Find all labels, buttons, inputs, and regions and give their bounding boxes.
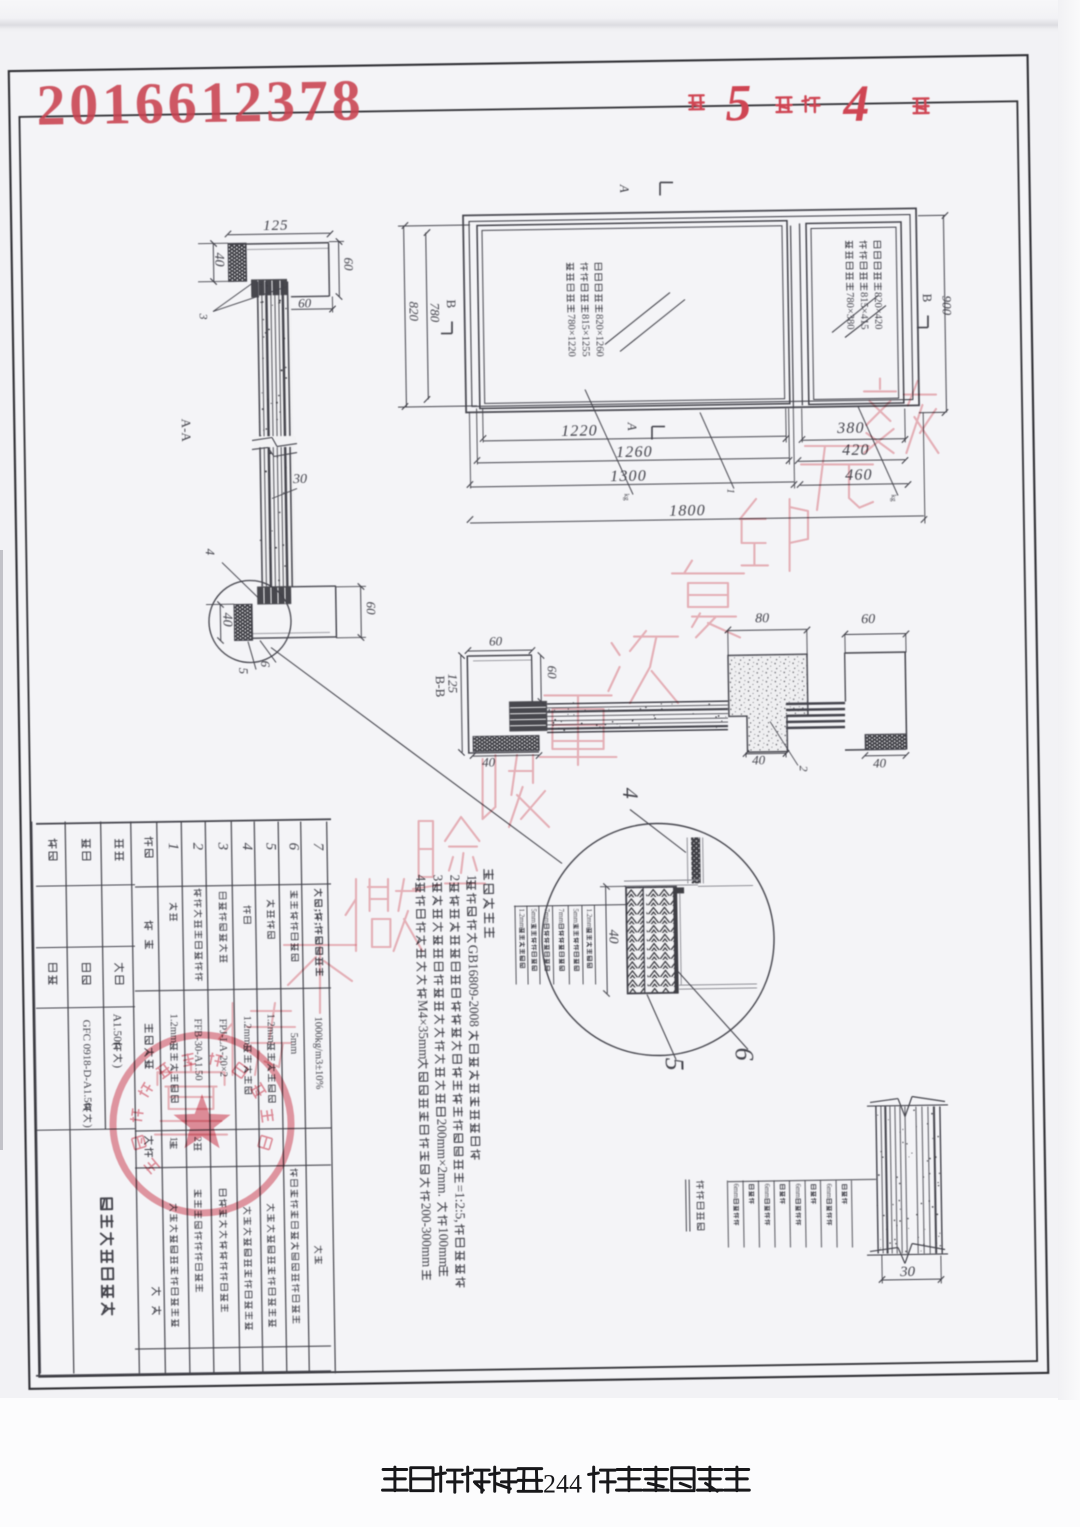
svg-text:244: 244 bbox=[543, 1469, 582, 1498]
